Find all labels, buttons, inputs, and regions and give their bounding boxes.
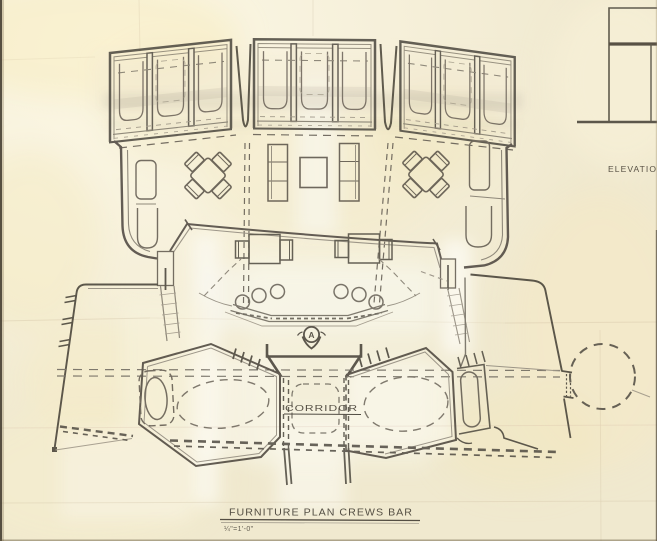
svg-text:ELEVATION: ELEVATION [608,164,657,174]
svg-text:CORRIDOR: CORRIDOR [285,404,358,413]
svg-text:¼"=1'-0": ¼"=1'-0" [224,526,254,533]
svg-text:A: A [308,330,314,340]
svg-text:FURNITURE PLAN CREWS BAR: FURNITURE PLAN CREWS BAR [229,507,413,519]
